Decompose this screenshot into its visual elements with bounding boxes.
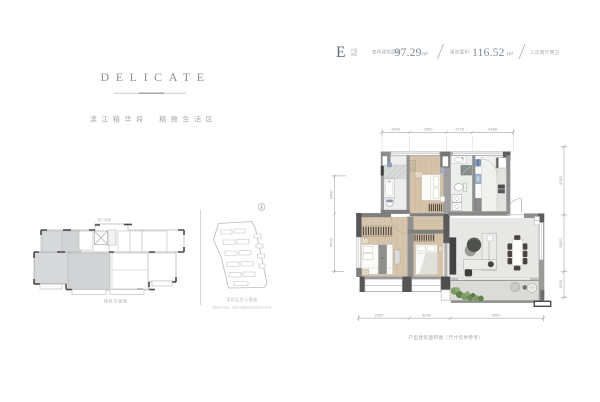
svg-text:楼栋平面图: 楼栋平面图 bbox=[104, 298, 128, 305]
svg-text:梯厅 电梯: 梯厅 电梯 bbox=[97, 217, 111, 222]
svg-text:2480: 2480 bbox=[488, 127, 498, 132]
svg-text:三房两厅两卫: 三房两厅两卫 bbox=[530, 49, 559, 56]
svg-text:6020: 6020 bbox=[558, 238, 563, 248]
svg-text:4230: 4230 bbox=[558, 175, 563, 185]
svg-text:2900: 2900 bbox=[424, 127, 434, 132]
svg-text:m²: m² bbox=[422, 52, 428, 58]
svg-text:3090: 3090 bbox=[422, 313, 432, 318]
svg-text:1900: 1900 bbox=[391, 127, 401, 132]
svg-text:m²: m² bbox=[507, 52, 513, 58]
svg-text:E: E bbox=[336, 44, 345, 61]
svg-text:户型建筑面积图（尺寸仅供参考）: 户型建筑面积图（尺寸仅供参考） bbox=[409, 334, 484, 341]
svg-text:项目区位示意图: 项目区位示意图 bbox=[226, 296, 258, 302]
svg-text:DELICATE: DELICATE bbox=[100, 70, 210, 84]
svg-text:97.29: 97.29 bbox=[395, 45, 422, 59]
svg-text:5500: 5500 bbox=[492, 313, 502, 318]
svg-text:4700: 4700 bbox=[329, 237, 334, 247]
svg-text:图示仅为示意，最终以政府批文及实际交付为准: 图示仅为示意，最终以政府批文及实际交付为准 bbox=[213, 305, 272, 309]
svg-text:建筑面积: 建筑面积 bbox=[450, 49, 469, 56]
svg-text:2500: 2500 bbox=[375, 313, 385, 318]
svg-text:洋房: 洋房 bbox=[351, 51, 358, 56]
svg-text:116.52: 116.52 bbox=[472, 45, 505, 59]
svg-text:1720: 1720 bbox=[455, 127, 465, 132]
svg-text:滨江精华段 精致生活区: 滨江精华段 精致生活区 bbox=[90, 115, 218, 124]
svg-text:1900: 1900 bbox=[558, 279, 563, 289]
svg-text:3400: 3400 bbox=[329, 189, 334, 199]
